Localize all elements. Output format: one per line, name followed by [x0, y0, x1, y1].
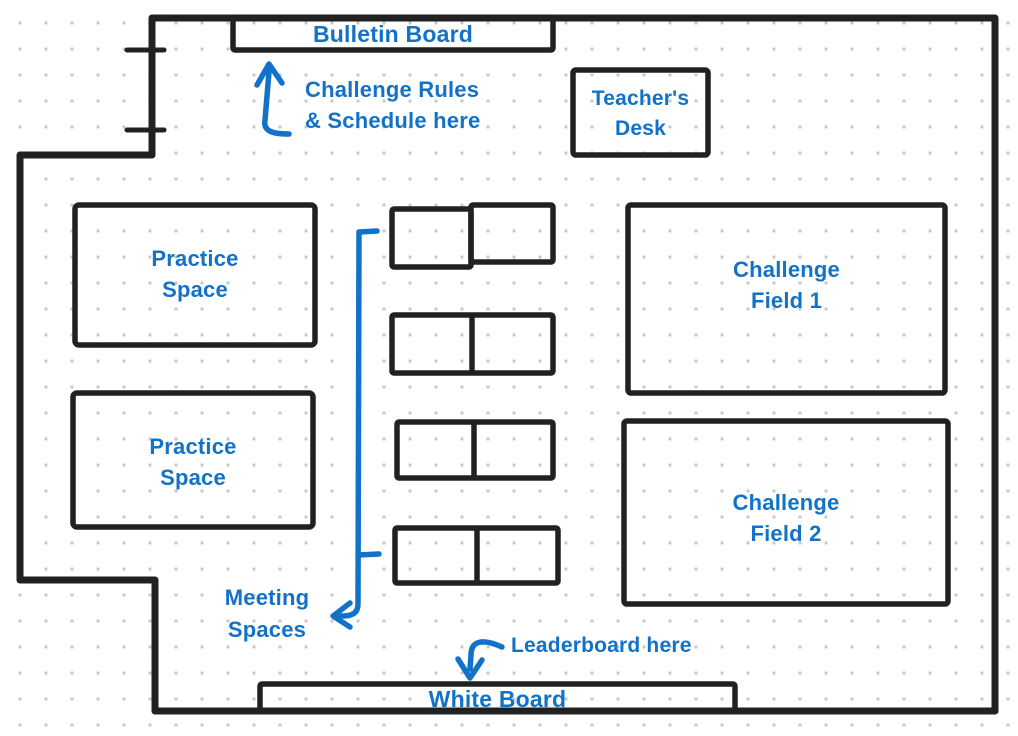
challenge-rules-note: Challenge Rules & Schedule here — [305, 74, 585, 136]
meeting-table-1 — [392, 205, 553, 267]
floor-plan: Bulletin Board Teacher's Desk Practice S… — [0, 0, 1018, 736]
meeting-spaces-line1: Meeting — [185, 582, 349, 614]
meeting-table-3 — [397, 422, 553, 478]
meeting-spaces-note: Meeting Spaces — [185, 582, 349, 646]
practice-space-2-label: Practice Space — [73, 431, 313, 493]
challenge-field-2-line2: Field 2 — [624, 518, 948, 549]
teachers-desk-label: Teacher's Desk — [573, 84, 708, 144]
meeting-table-2 — [392, 315, 553, 373]
practice-space-1-line2: Space — [75, 274, 315, 305]
challenge-rules-arrow — [257, 64, 289, 134]
challenge-rules-line2: & Schedule here — [305, 105, 585, 136]
white-board-label: White Board — [260, 686, 735, 713]
practice-space-2-line2: Space — [73, 462, 313, 493]
teachers-desk-line2: Desk — [573, 114, 708, 144]
meeting-table-1-right — [471, 205, 553, 262]
practice-space-2-line1: Practice — [73, 431, 313, 462]
challenge-field-1-line2: Field 1 — [628, 285, 945, 316]
bulletin-board-label: Bulletin Board — [233, 19, 553, 49]
challenge-field-2-line1: Challenge — [624, 487, 948, 518]
meeting-spaces-line2: Spaces — [185, 614, 349, 646]
meeting-spaces-bracket-tick — [358, 554, 379, 555]
meeting-table-4 — [395, 528, 558, 583]
meeting-spaces-bracket — [333, 231, 379, 627]
challenge-field-1-label: Challenge Field 1 — [628, 254, 945, 316]
leaderboard-note: Leaderboard here — [511, 633, 791, 658]
challenge-field-2-label: Challenge Field 2 — [624, 487, 948, 549]
leaderboard-text: Leaderboard here — [511, 633, 791, 658]
challenge-field-1-line1: Challenge — [628, 254, 945, 285]
bulletin-board-text: Bulletin Board — [233, 19, 553, 49]
white-board-text: White Board — [260, 686, 735, 713]
meeting-table-1-left — [392, 209, 471, 267]
challenge-rules-line1: Challenge Rules — [305, 74, 585, 105]
leaderboard-arrow — [458, 642, 502, 678]
teachers-desk-line1: Teacher's — [573, 84, 708, 114]
practice-space-1-line1: Practice — [75, 243, 315, 274]
practice-space-1-label: Practice Space — [75, 243, 315, 305]
